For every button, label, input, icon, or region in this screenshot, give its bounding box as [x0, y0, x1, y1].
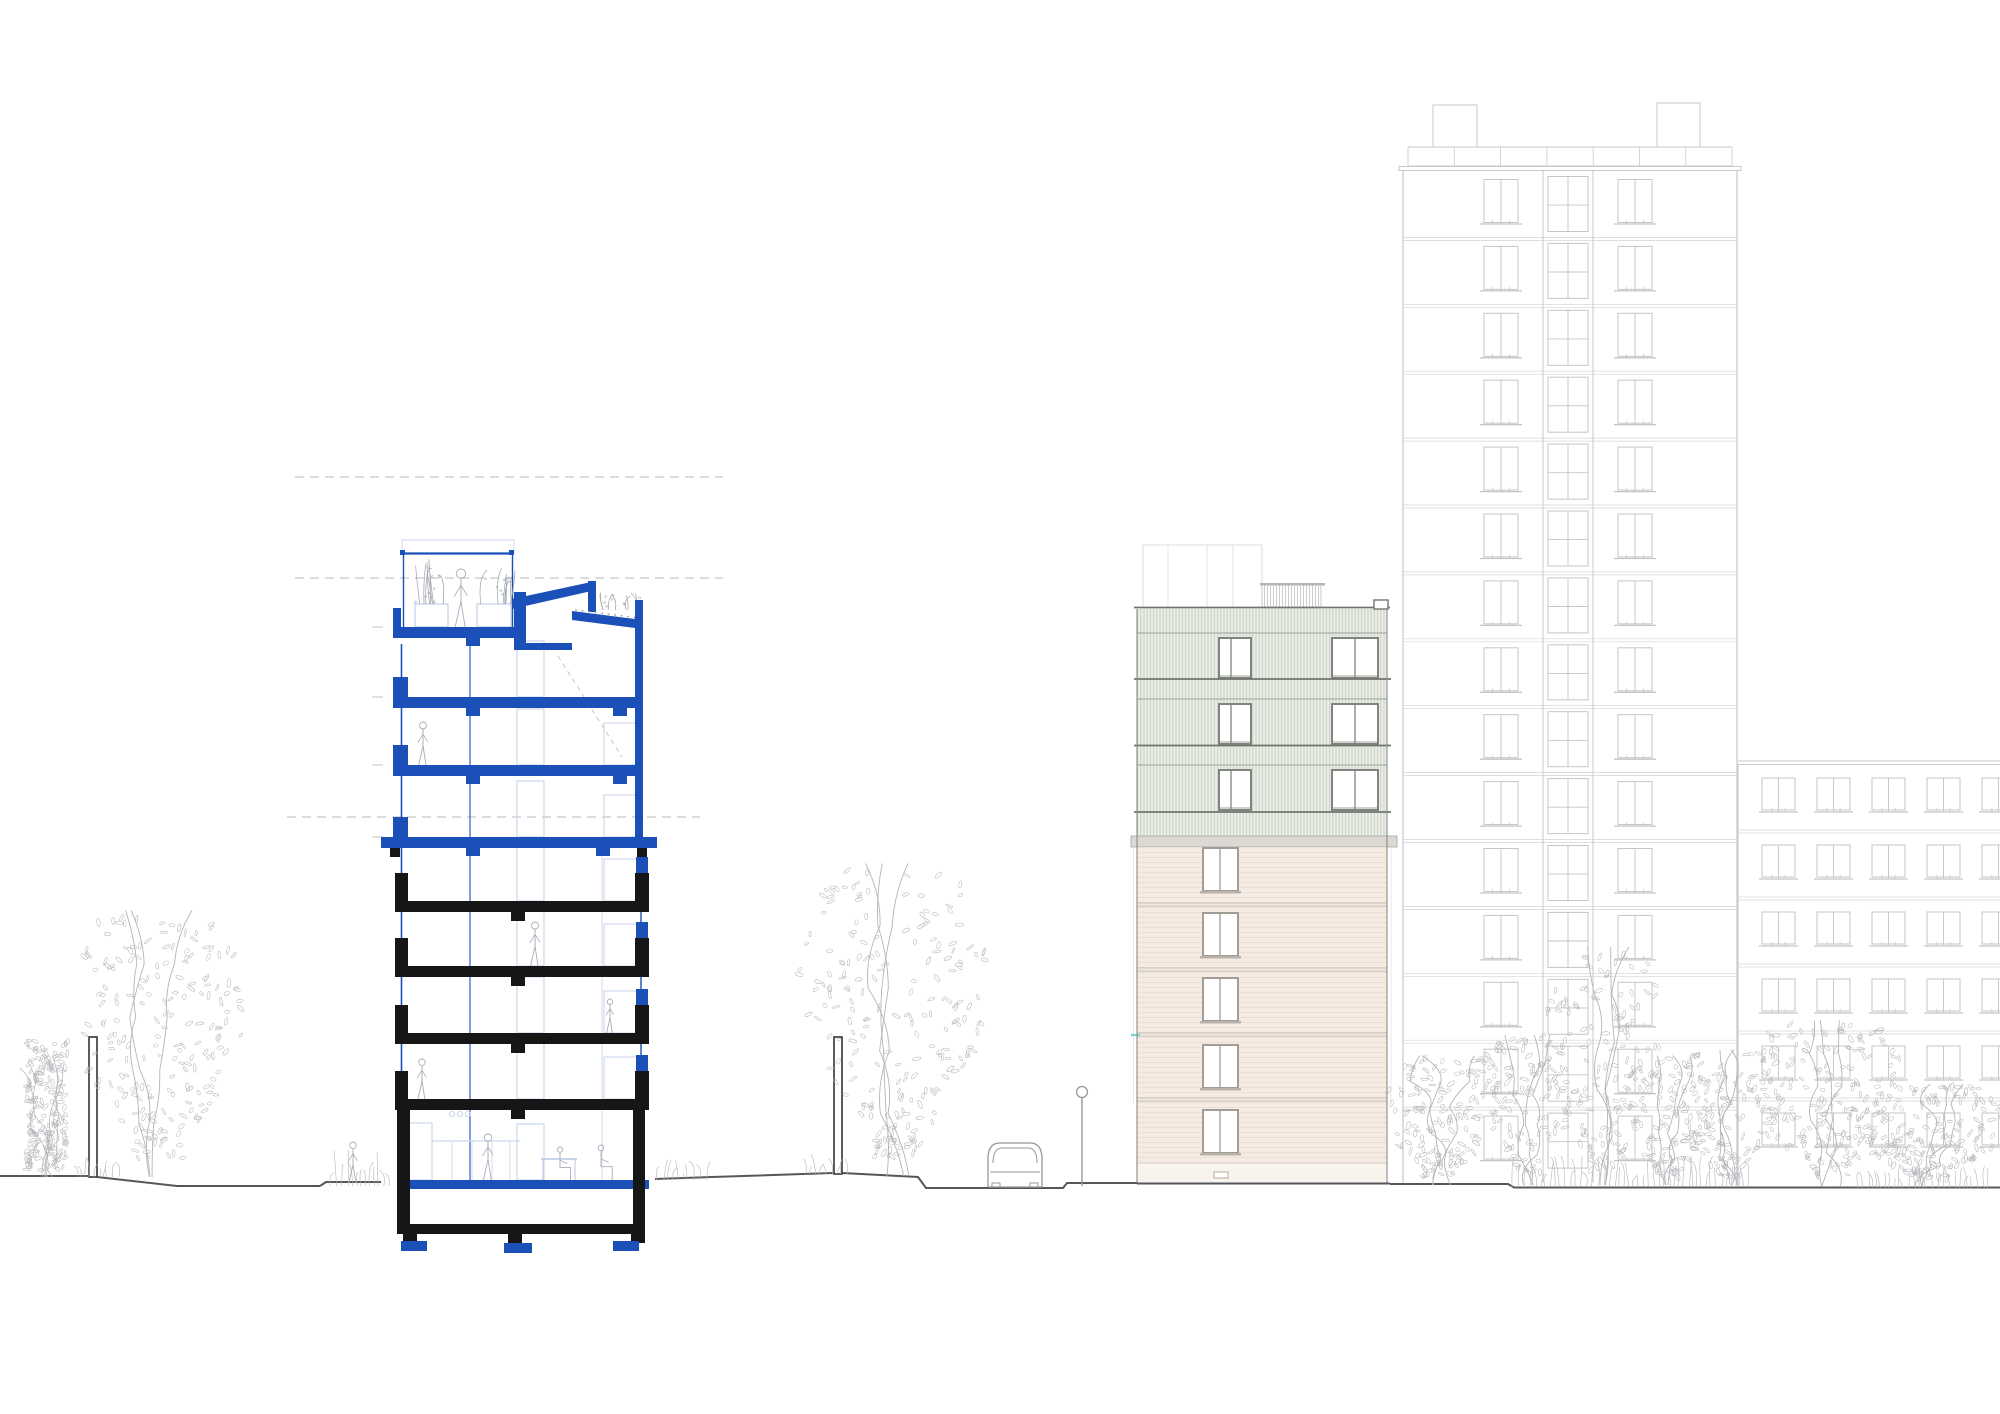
drawing-canvas — [0, 0, 2000, 1414]
background — [0, 0, 2000, 1414]
architectural-drawing — [0, 0, 2000, 1414]
extension-building-elevation — [1131, 545, 1397, 1183]
